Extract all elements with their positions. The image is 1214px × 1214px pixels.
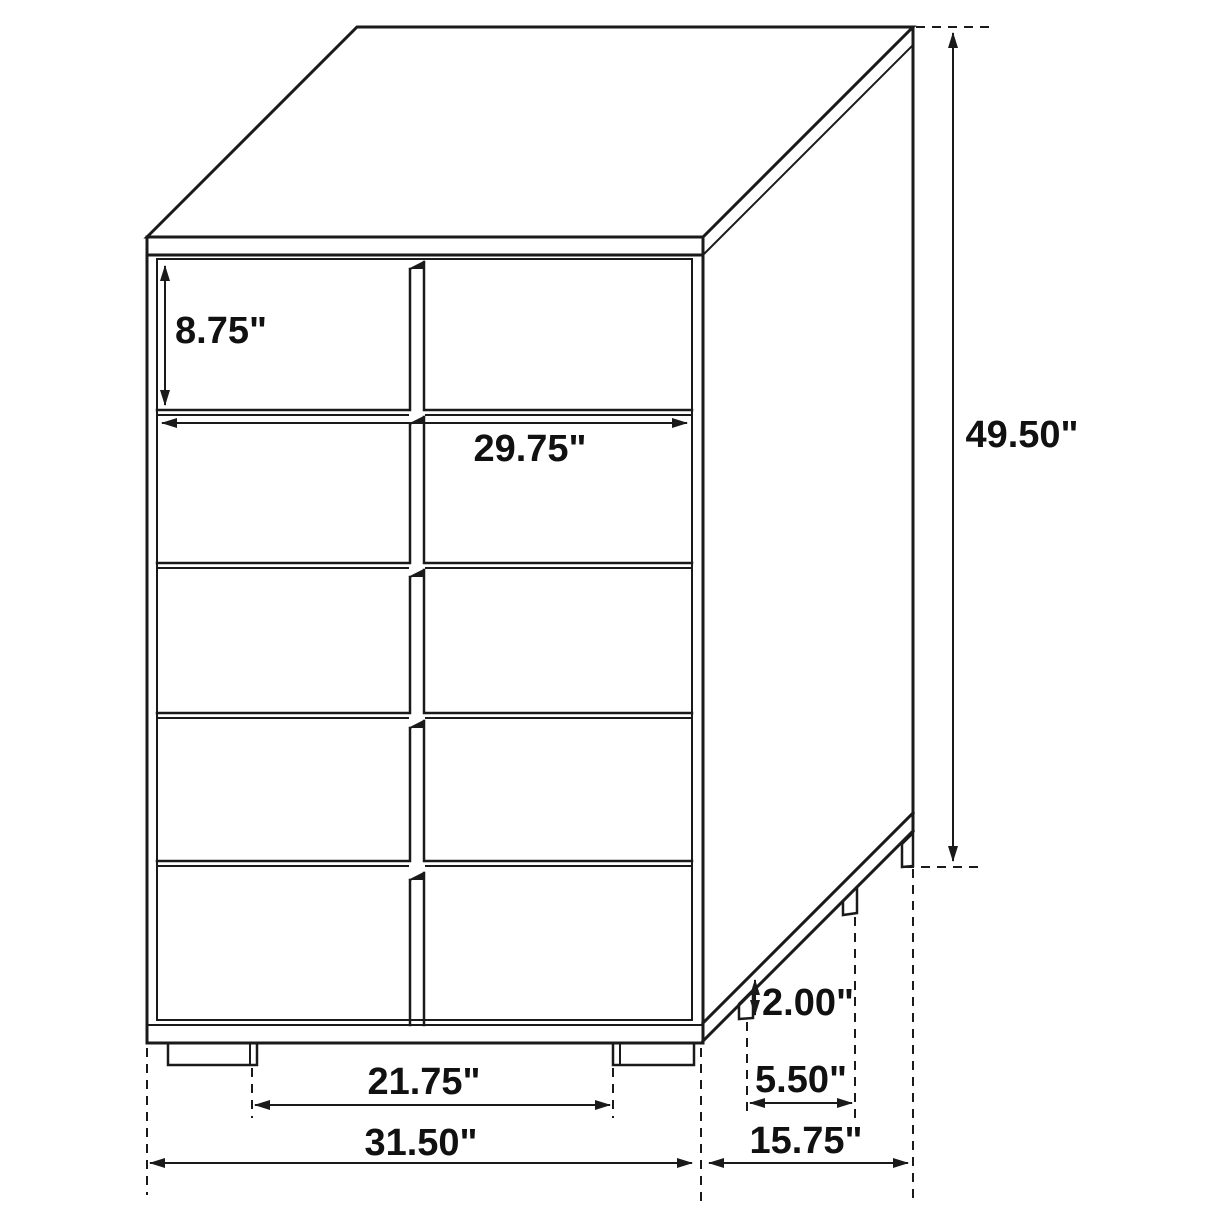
back-corner-foot — [902, 833, 913, 867]
dimension-label-side-leg-spacing: 5.50" — [755, 1059, 847, 1101]
dimensions: 8.75" 29.75" 49.50" 2.00" 5.50" 15.75" — [147, 27, 1079, 1205]
drawer-handle-1 — [410, 262, 424, 410]
front-left-foot — [168, 1043, 257, 1065]
front-right-foot — [613, 1043, 694, 1065]
dimension-label-overall-width: 31.50" — [364, 1122, 477, 1164]
drawer-fronts — [157, 262, 692, 1025]
dimension-front-leg-gap: 21.75" — [252, 1061, 613, 1118]
chest-dimension-diagram: 8.75" 29.75" 49.50" 2.00" 5.50" 15.75" — [0, 0, 1214, 1214]
chest-outline — [147, 27, 913, 1065]
dimension-label-overall-depth: 15.75" — [749, 1120, 862, 1162]
dimension-overall-height: 49.50" — [905, 27, 1079, 867]
top-slab-side-edge — [703, 45, 913, 255]
drawer-handle-4 — [410, 721, 424, 861]
dimension-drawer-height: 8.75" — [165, 266, 267, 405]
dimension-label-overall-height: 49.50" — [965, 414, 1078, 456]
dimension-label-base-height: 2.00" — [762, 982, 854, 1024]
drawer-handle-2 — [410, 417, 424, 563]
drawer-handle-3 — [410, 570, 424, 713]
dimension-label-drawer-height: 8.75" — [175, 310, 267, 352]
dimension-label-drawer-width: 29.75" — [473, 428, 586, 470]
chest-dimension-diagram-page: 8.75" 29.75" 49.50" 2.00" 5.50" 15.75" — [0, 0, 1214, 1214]
dimension-label-front-leg-gap: 21.75" — [367, 1061, 480, 1103]
dimension-base-height: 2.00" — [755, 980, 854, 1024]
drawer-handle-5 — [410, 873, 424, 1025]
top-face — [147, 27, 913, 237]
